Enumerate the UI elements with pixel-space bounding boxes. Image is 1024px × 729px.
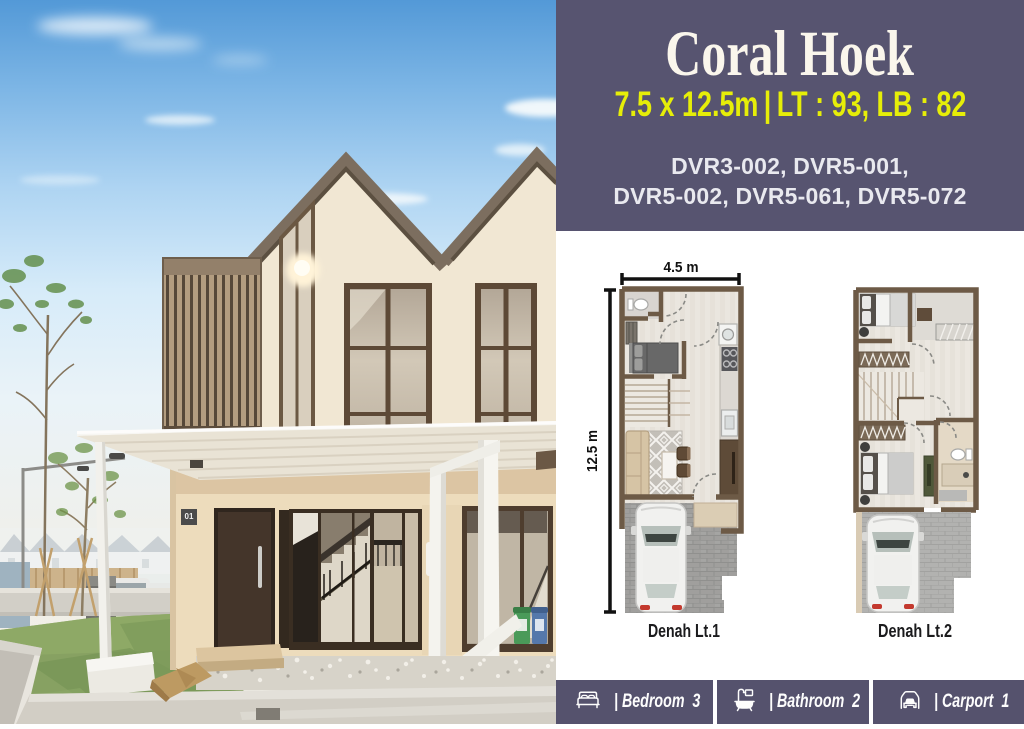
svg-text:01: 01: [185, 512, 194, 521]
svg-text:4.5 m: 4.5 m: [664, 259, 699, 276]
svg-text:Denah Lt.1: Denah Lt.1: [648, 621, 720, 641]
svg-text:12.5 m: 12.5 m: [586, 430, 601, 472]
svg-text:Denah Lt.2: Denah Lt.2: [878, 621, 952, 641]
